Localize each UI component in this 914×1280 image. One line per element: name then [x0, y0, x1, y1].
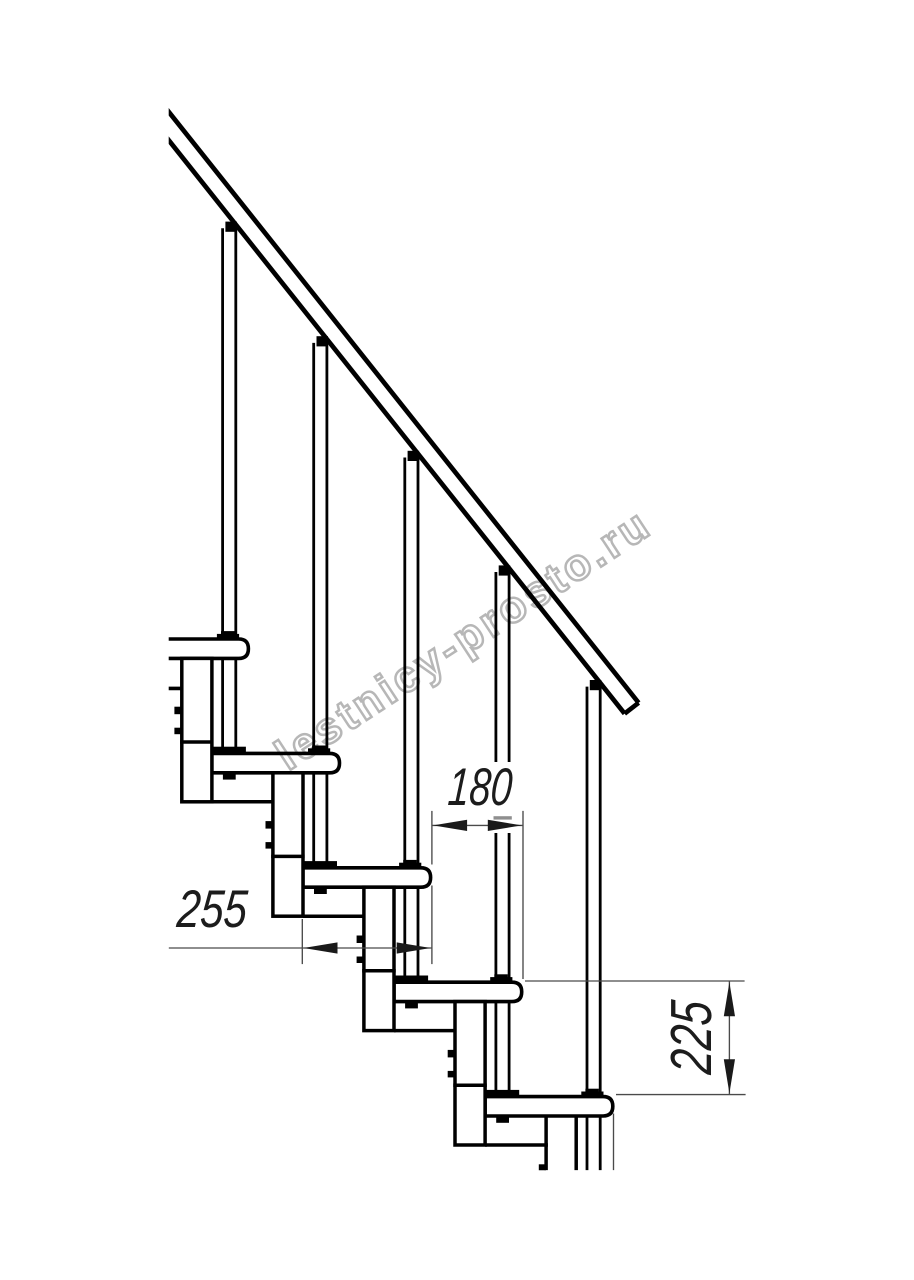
svg-text:225: 225	[659, 998, 724, 1077]
svg-text:180: 180	[446, 758, 515, 817]
svg-text:255: 255	[174, 880, 249, 939]
